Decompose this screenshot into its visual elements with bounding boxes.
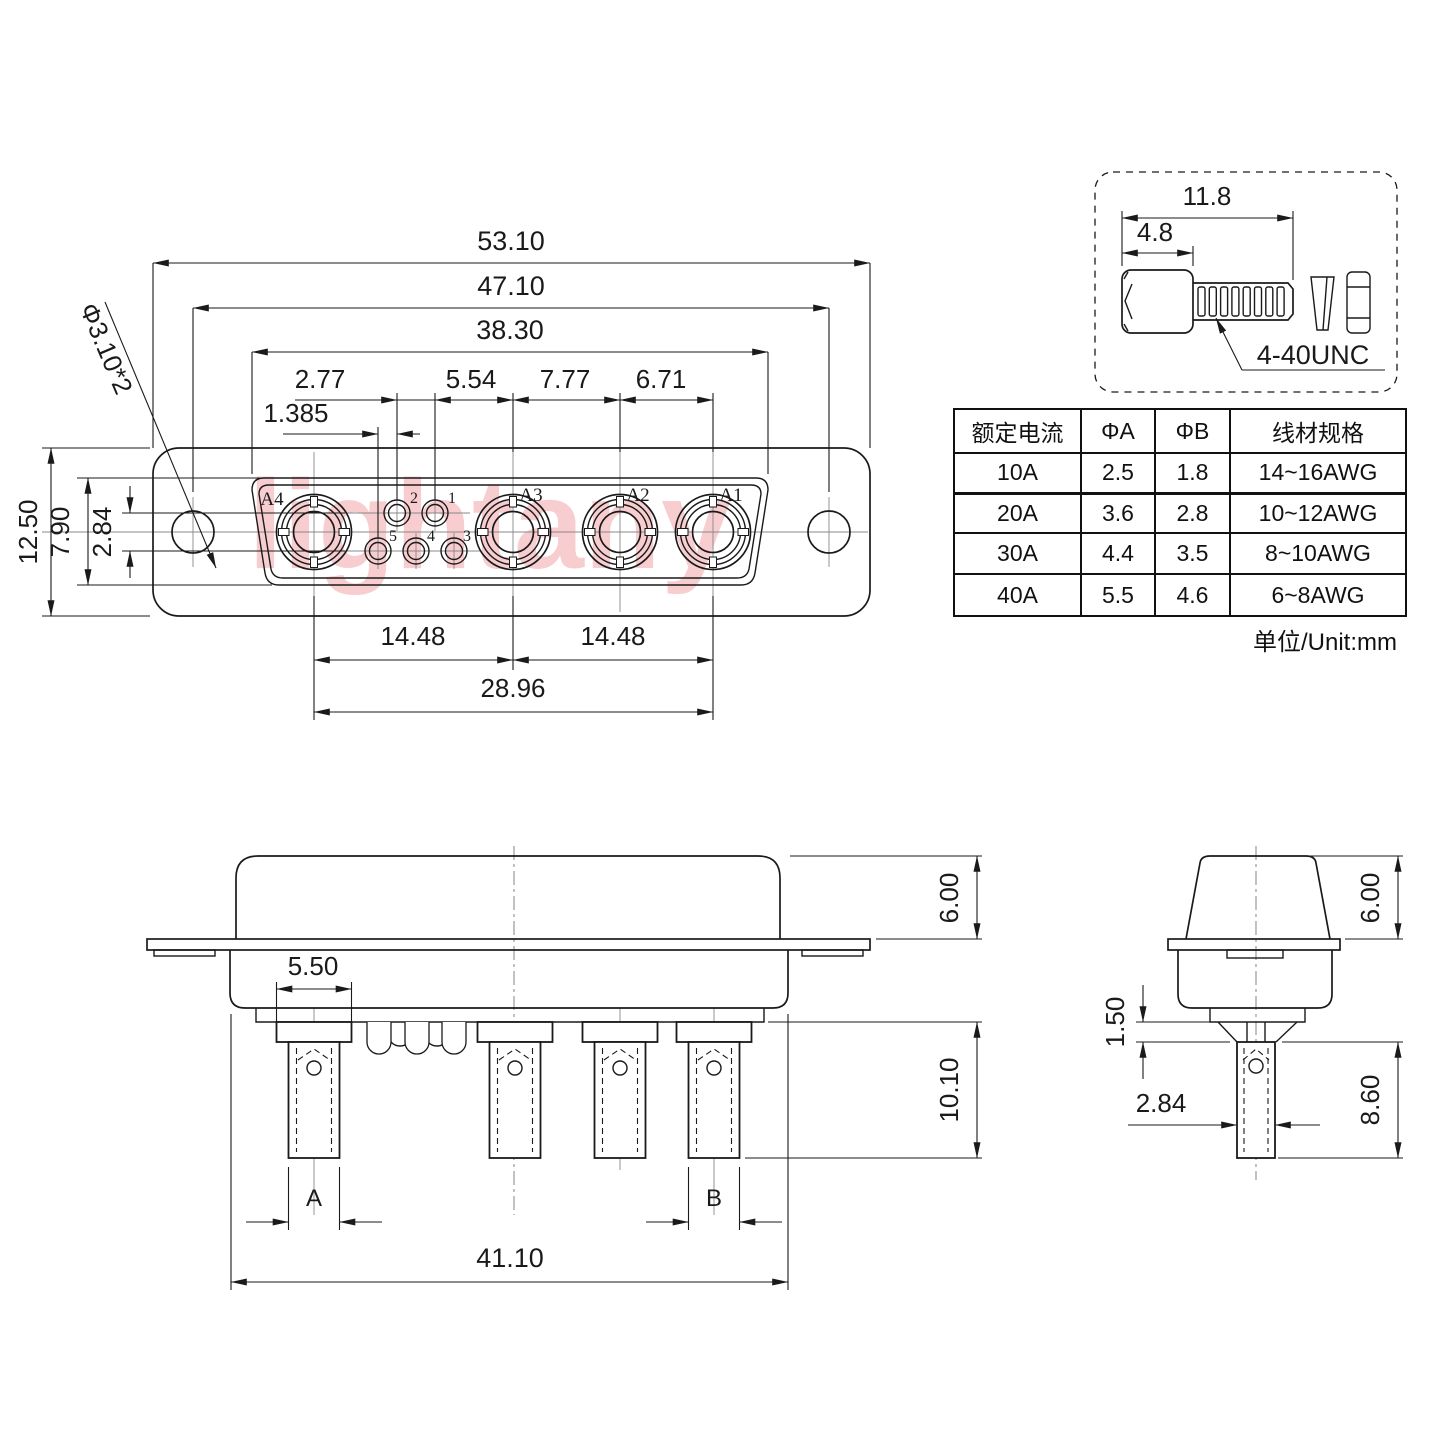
dim-2-84-end: 2.84 (1136, 1088, 1187, 1118)
hole-note: Φ3.10*2 (74, 298, 139, 398)
header-dia-b: ΦB (1155, 409, 1230, 453)
end-view: 6.00 1.50 2.84 8.60 (1100, 846, 1403, 1180)
header-dia-a: ΦA (1081, 409, 1155, 453)
contact-label-a4: A4 (260, 489, 284, 510)
dim-10-10: 10.10 (934, 1057, 964, 1122)
dim-6-00-side: 6.00 (934, 873, 964, 924)
end-flange (1168, 939, 1340, 950)
dim-14-48-left: 14.48 (380, 621, 445, 651)
dim-6-00-end: 6.00 (1355, 873, 1385, 924)
thread-spec-label: 4-40UNC (1257, 340, 1370, 370)
flange-side (147, 939, 870, 950)
contact-label-a1: A1 (719, 485, 742, 506)
table-row: 40A 5.5 4.6 6~8AWG (954, 574, 1406, 616)
label-a: A (306, 1185, 322, 1212)
contact-label-a3: A3 (519, 485, 542, 506)
dim-8-60: 8.60 (1355, 1075, 1385, 1126)
unit-note: 单位/Unit:mm (1140, 622, 1397, 657)
end-hood (1186, 856, 1330, 939)
hole-leader-line (105, 302, 216, 568)
table-row: 20A 3.6 2.8 10~12AWG (954, 493, 1406, 533)
terminal-4 (677, 1022, 752, 1158)
dim-7-77: 7.77 (540, 364, 591, 394)
signal-pin-tails (367, 1022, 466, 1054)
dim-41-10: 41.10 (476, 1243, 544, 1273)
dim-5-54: 5.54 (446, 364, 497, 394)
table-row: 10A 2.5 1.8 14~16AWG (954, 453, 1406, 493)
header-rated-current: 额定电流 (954, 409, 1081, 453)
dim-1-50: 1.50 (1100, 997, 1130, 1048)
screw-thread (1193, 283, 1293, 320)
spec-header-row: 额定电流 ΦA ΦB 线材规格 (954, 409, 1406, 453)
dim-12-50: 12.50 (13, 499, 43, 564)
terminal-2 (478, 1022, 553, 1158)
end-body (1178, 950, 1332, 1008)
dim-14-48-right: 14.48 (580, 621, 645, 651)
pin-label-5: 5 (389, 528, 397, 545)
screw-head (1122, 270, 1193, 333)
dim-1-385: 1.385 (263, 398, 328, 428)
hood-outline (236, 856, 780, 939)
pin-label-3: 3 (463, 528, 471, 545)
header-wire-gauge: 线材规格 (1230, 409, 1406, 453)
pin-label-1: 1 (448, 490, 456, 507)
screw-detail: 11.8 4.8 (1095, 172, 1397, 392)
end-terminal (1237, 1042, 1275, 1158)
insulator (256, 1008, 764, 1022)
dim-5-50: 5.50 (288, 951, 339, 981)
label-b: B (706, 1185, 722, 1212)
terminal-3 (583, 1022, 658, 1158)
spec-table: 额定电流 ΦA ΦB 线材规格 10A 2.5 1.8 14~16AWG 20A… (953, 408, 1407, 617)
dim-38-30: 38.30 (476, 315, 544, 345)
pin-label-4: 4 (427, 528, 435, 545)
technical-drawing-page: lightany (0, 0, 1440, 1440)
side-view: 5.50 6.00 10.10 A B (147, 846, 982, 1290)
dim-2-84-front: 2.84 (87, 507, 117, 558)
dim-7-90: 7.90 (45, 507, 75, 558)
terminal-1 (277, 1022, 352, 1158)
dim-47-10: 47.10 (477, 271, 545, 301)
end-insulator (1210, 1008, 1305, 1022)
drawing-svg: A4 A3 A2 A1 2 1 5 4 3 (0, 0, 1440, 1440)
dim-4-8: 4.8 (1137, 217, 1173, 247)
pin-label-2: 2 (410, 490, 418, 507)
dim-2-77: 2.77 (295, 364, 346, 394)
dim-11-8: 11.8 (1183, 181, 1232, 211)
front-view: A4 A3 A2 A1 2 1 5 4 3 (13, 226, 870, 720)
contact-label-a2: A2 (626, 485, 649, 506)
dim-53-10: 53.10 (477, 226, 545, 256)
dim-6-71: 6.71 (636, 364, 687, 394)
table-row: 30A 4.4 3.5 8~10AWG (954, 533, 1406, 574)
screw-side-pieces (1311, 272, 1370, 333)
dim-28-96: 28.96 (480, 673, 545, 703)
